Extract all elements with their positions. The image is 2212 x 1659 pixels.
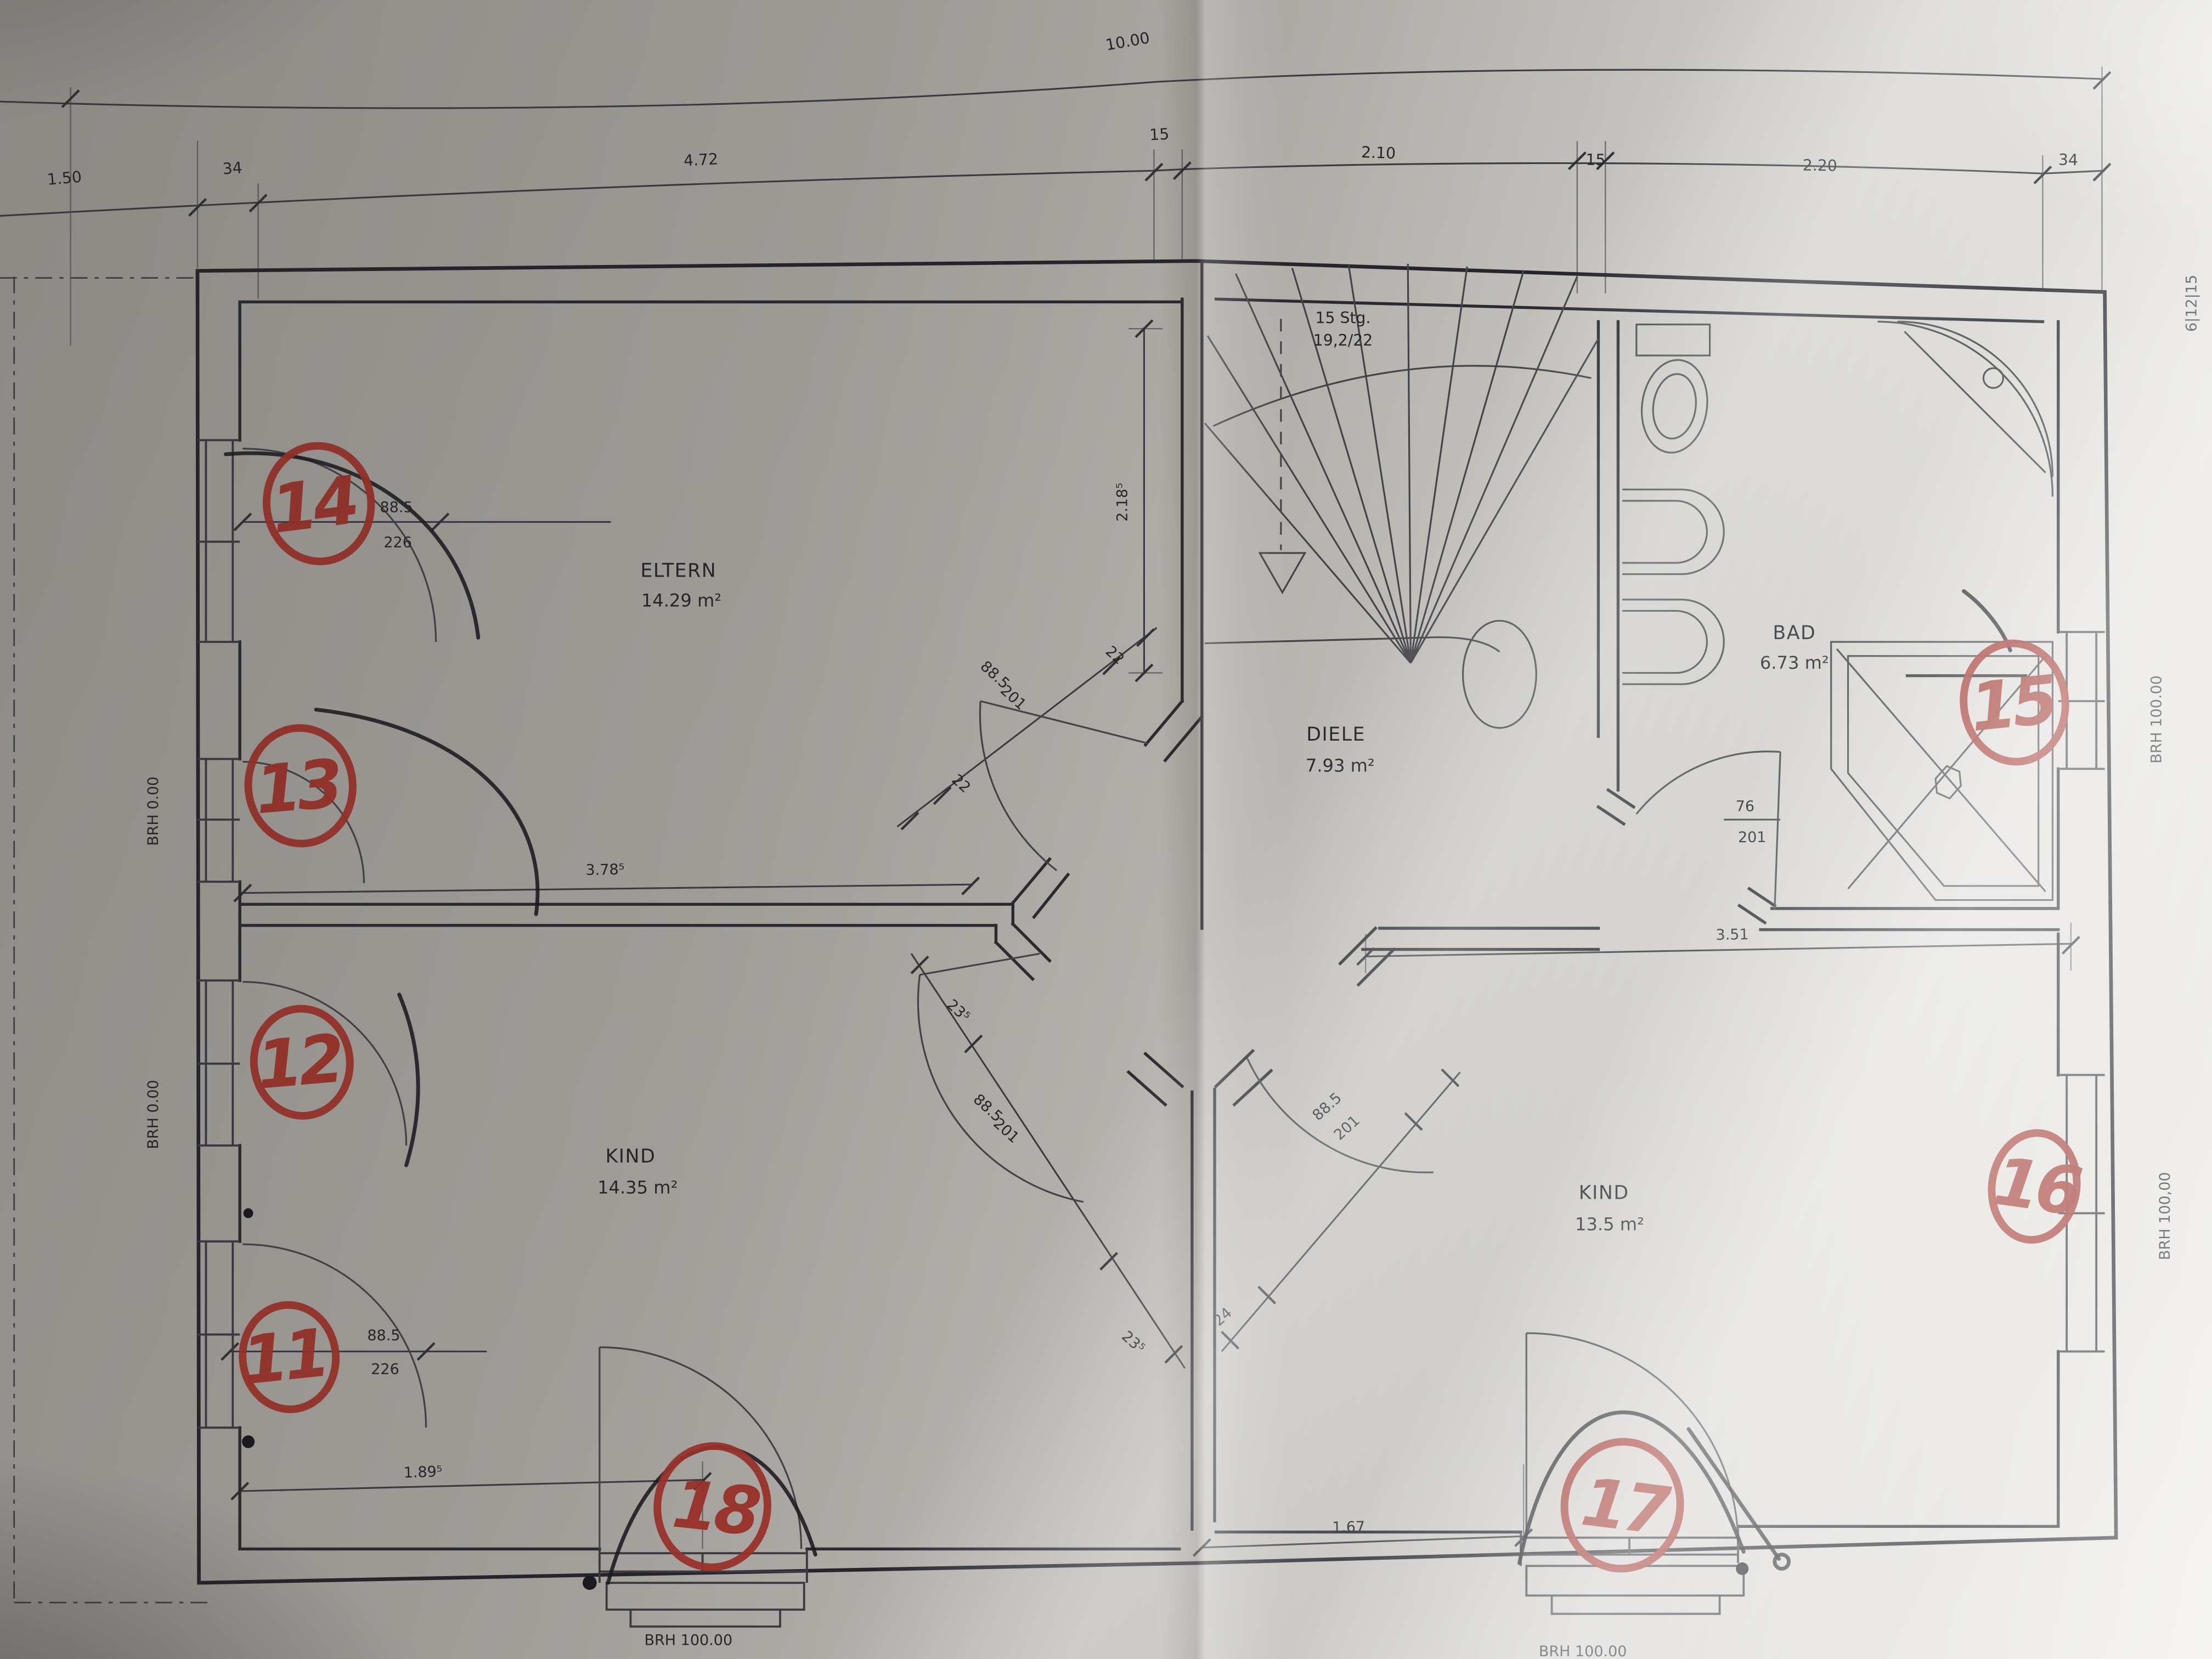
outer-wall [198, 261, 2116, 1583]
dim-kind2-width: 3.51 [1716, 926, 1749, 944]
room-door-w-kind2: 88.5 [1309, 1090, 1345, 1124]
marker-14: 14 [261, 441, 377, 567]
dim-15-right: 15 [1585, 151, 1606, 170]
jamb-22-b: 22 [949, 771, 974, 797]
marker-16: 16 [1985, 1127, 2085, 1245]
balcony-door-w-2: 88.5 [367, 1327, 400, 1344]
marker-15: 15 [1958, 638, 2072, 766]
marker-15-number: 15 [1966, 661, 2058, 747]
jamb-22-a: 22 [1102, 643, 1127, 668]
room-bad: BAD [1773, 622, 1816, 644]
window-frames [198, 440, 2105, 1583]
marker-17-number: 17 [1577, 1463, 1674, 1550]
sill-left-lower: BRH 0.00 [145, 1080, 162, 1149]
room-door-h-kind2: 201 [1331, 1112, 1363, 1144]
red-markers: 14 13 12 11 18 17 16 15 [238, 441, 2085, 1575]
staircase [1205, 264, 1598, 728]
stair-newel [1463, 620, 1537, 727]
marker-13-number: 13 [252, 745, 342, 830]
floor-plan-drawing: 10.00 1.50 34 4.72 15 2.10 15 2.20 34 15… [0, 0, 2212, 1659]
room-kind1: KIND [605, 1145, 656, 1167]
room-diele: DIELE [1306, 724, 1365, 746]
room-bad-area: 6.73 m² [1760, 652, 1829, 673]
jamb-235-b: 23⁵ [1118, 1328, 1148, 1357]
marker-18-number: 18 [669, 1465, 763, 1551]
sill-right-upper: BRH 100.00 [2148, 675, 2165, 764]
marker-12: 12 [250, 1005, 354, 1120]
dim-kind1-bottom: 1.89⁵ [403, 1463, 443, 1481]
site-boundary-lines [0, 276, 212, 1602]
sill-left-upper: BRH 0.00 [145, 776, 162, 845]
sink-2 [1622, 600, 1724, 684]
printed-labels: 10.00 1.50 34 4.72 15 2.10 15 2.20 34 15… [47, 29, 2200, 1659]
dim-2-10: 2.10 [1361, 143, 1396, 162]
walls [198, 261, 2116, 1627]
toilet-bowl [1636, 356, 1713, 457]
marker-12-number: 12 [253, 1020, 345, 1104]
dim-total: 10.00 [1104, 29, 1151, 54]
sink-1 [1622, 489, 1724, 574]
dim-34-right: 34 [2058, 151, 2079, 170]
dim-2-20: 2.20 [1803, 156, 1838, 175]
room-kind1-area: 14.35 m² [597, 1177, 678, 1198]
dim-4-72: 4.72 [683, 150, 719, 170]
sill-right-lower: BRH 100,00 [2157, 1172, 2174, 1260]
room-kind2-area: 13.5 m² [1575, 1214, 1644, 1234]
dim-kind2-bottom: 1.67 [1332, 1519, 1365, 1536]
exterior-steps [607, 1566, 1744, 1627]
room-kind2: KIND [1579, 1182, 1629, 1204]
bath-fixtures [1622, 321, 2052, 900]
stair-direction-arrow [1260, 553, 1305, 592]
dim-eltern-width: 3.78⁵ [585, 861, 624, 879]
shower-drain [1983, 368, 2003, 388]
marker-14-number: 14 [267, 461, 360, 549]
marker-16-number: 16 [1989, 1142, 2085, 1231]
sill-bottom-right: BRH 100.00 [1539, 1643, 1627, 1659]
floor-plan-photo: 10.00 1.50 34 4.72 15 2.10 15 2.20 34 15… [0, 0, 2212, 1659]
dim-1-50: 1.50 [47, 168, 83, 189]
bath-door-h: 201 [1738, 829, 1767, 846]
dim-eltern-height: 2.18⁵ [1114, 483, 1131, 522]
room-eltern: ELTERN [640, 560, 716, 582]
balcony-door-w-1: 88.5 [380, 499, 413, 516]
stairs-ratio: 19,2/22 [1313, 331, 1373, 349]
bath-door-w: 76 [1736, 798, 1754, 815]
chamfer-door-jambs [996, 701, 1774, 1104]
edge-date-note: 6|12|15 [2183, 275, 2200, 332]
marker-11-number: 11 [238, 1314, 330, 1400]
shower [1878, 321, 2053, 496]
marker-13: 13 [244, 724, 357, 847]
stairs-count: 15 Stg. [1316, 309, 1371, 327]
sill-bottom-left: BRH 100.00 [645, 1632, 733, 1649]
room-diele-area: 7.93 m² [1306, 755, 1375, 776]
balcony-door-h-2: 226 [371, 1361, 399, 1378]
balcony-door-h-1: 226 [383, 534, 412, 551]
jamb-235-a: 23⁵ [943, 996, 973, 1025]
pen-annotations [225, 453, 2010, 1590]
dim-34-left: 34 [222, 159, 243, 178]
marker-11: 11 [238, 1301, 340, 1413]
inner-wall-faces [240, 262, 2058, 1549]
room-eltern-area: 14.29 m² [641, 590, 721, 611]
dim-15-left: 15 [1149, 125, 1170, 144]
toilet-tank [1637, 324, 1710, 356]
